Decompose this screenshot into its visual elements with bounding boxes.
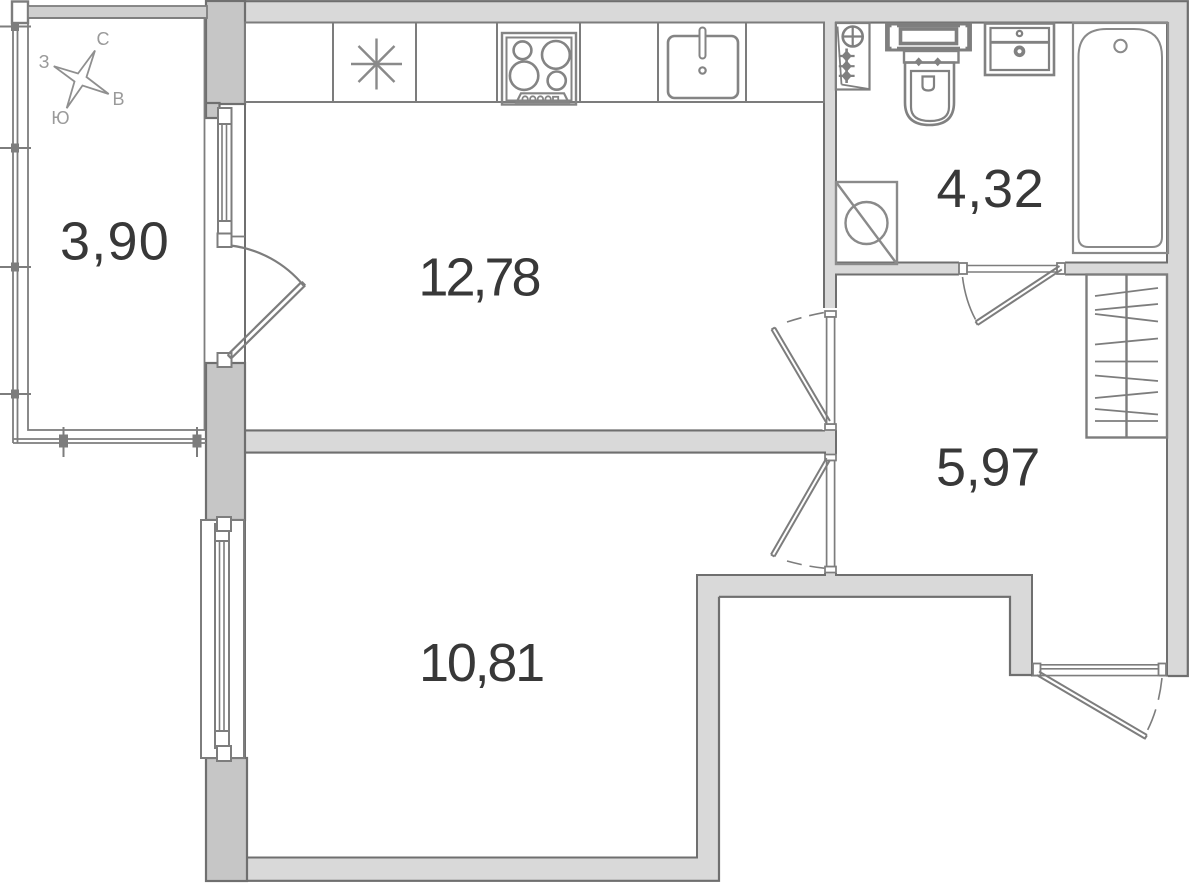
svg-text:В: В [112, 89, 124, 109]
svg-text:12,78: 12,78 [418, 248, 539, 308]
svg-text:З: З [39, 52, 50, 72]
svg-text:5,97: 5,97 [936, 438, 1040, 498]
svg-text:10,81: 10,81 [419, 633, 543, 693]
svg-text:С: С [97, 29, 110, 49]
svg-text:Ю: Ю [51, 108, 69, 128]
svg-text:4,32: 4,32 [937, 159, 1045, 219]
svg-text:3,90: 3,90 [60, 212, 170, 272]
